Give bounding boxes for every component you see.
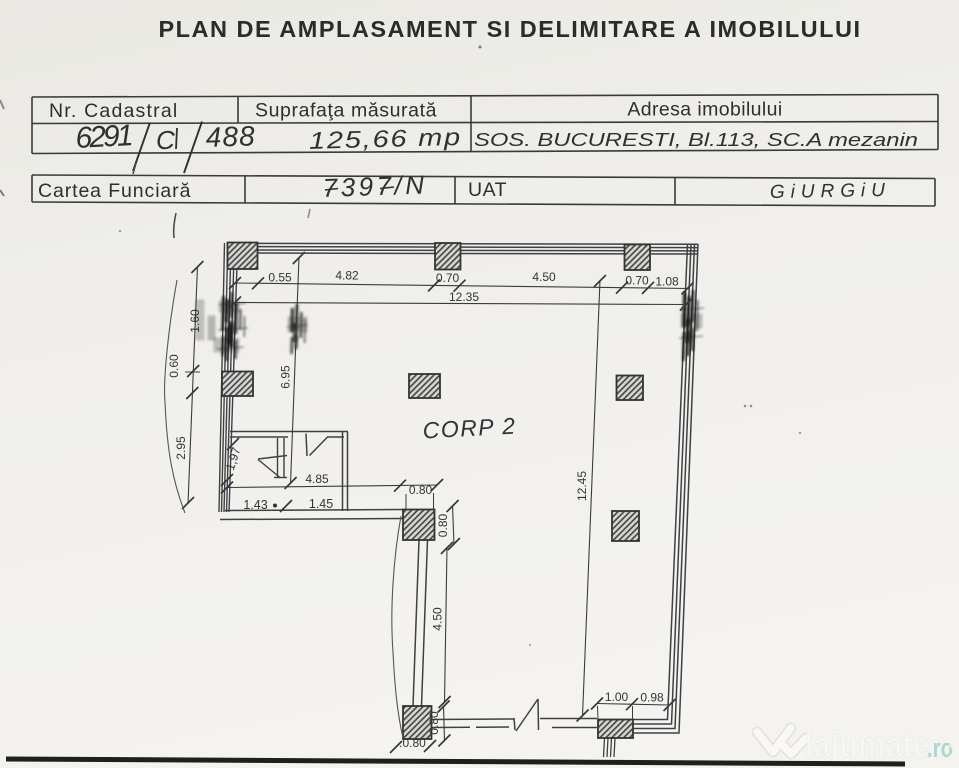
svg-text:0.98: 0.98 bbox=[640, 691, 664, 705]
svg-text:0.80: 0.80 bbox=[427, 711, 441, 735]
svg-text:4.50: 4.50 bbox=[532, 270, 556, 284]
svg-text:Suprafaţa măsurată: Suprafaţa măsurată bbox=[255, 100, 437, 122]
svg-text:.ro: .ro bbox=[927, 733, 953, 763]
svg-text:4.50: 4.50 bbox=[431, 607, 445, 631]
svg-text:0.70: 0.70 bbox=[625, 274, 649, 288]
svg-text:4.82: 4.82 bbox=[335, 269, 359, 283]
svg-text:6291: 6291 bbox=[75, 119, 135, 155]
svg-text:1.43: 1.43 bbox=[243, 498, 267, 512]
svg-text:1.00: 1.00 bbox=[605, 690, 629, 704]
svg-text:PLAN DE AMPLASAMENT SI DELIMIT: PLAN DE AMPLASAMENT SI DELIMITARE A IMOB… bbox=[158, 16, 861, 42]
svg-text:7397/N: 7397/N bbox=[322, 169, 428, 203]
svg-text:.0.80: .0.80 bbox=[399, 736, 426, 750]
svg-text:6.95: 6.95 bbox=[279, 365, 293, 389]
svg-text:1.08: 1.08 bbox=[655, 275, 679, 289]
svg-text:SOS. BUCURESTI, Bl.113, SC.A m: SOS. BUCURESTI, Bl.113, SC.A mezanin bbox=[474, 130, 918, 150]
svg-text:4.85: 4.85 bbox=[305, 472, 329, 486]
svg-text:Cartea Funciară: Cartea Funciară bbox=[38, 180, 191, 202]
svg-text:0.70: 0.70 bbox=[436, 271, 460, 285]
svg-text:UAT: UAT bbox=[468, 179, 507, 201]
svg-text:0.80: 0.80 bbox=[436, 513, 450, 537]
svg-text:lajumate: lajumate bbox=[805, 724, 930, 765]
svg-text:1.60: 1.60 bbox=[188, 309, 202, 333]
svg-text:125,66 mp: 125,66 mp bbox=[309, 124, 463, 155]
svg-text:488: 488 bbox=[205, 120, 255, 153]
svg-text:0.60: 0.60 bbox=[167, 354, 181, 378]
svg-text:Nr. Cadastral: Nr. Cadastral bbox=[49, 100, 178, 122]
svg-text:Adresa imobilului: Adresa imobilului bbox=[627, 99, 782, 121]
svg-text:C: C bbox=[156, 125, 175, 155]
svg-text:CORP 2: CORP 2 bbox=[422, 413, 517, 444]
svg-text:2.95: 2.95 bbox=[174, 436, 188, 460]
svg-text:1.45: 1.45 bbox=[309, 497, 333, 511]
svg-text:12.35: 12.35 bbox=[449, 290, 479, 304]
svg-text:0.55: 0.55 bbox=[268, 271, 292, 285]
svg-text:0.80: 0.80 bbox=[409, 483, 433, 497]
svg-text:12.45: 12.45 bbox=[575, 471, 589, 501]
